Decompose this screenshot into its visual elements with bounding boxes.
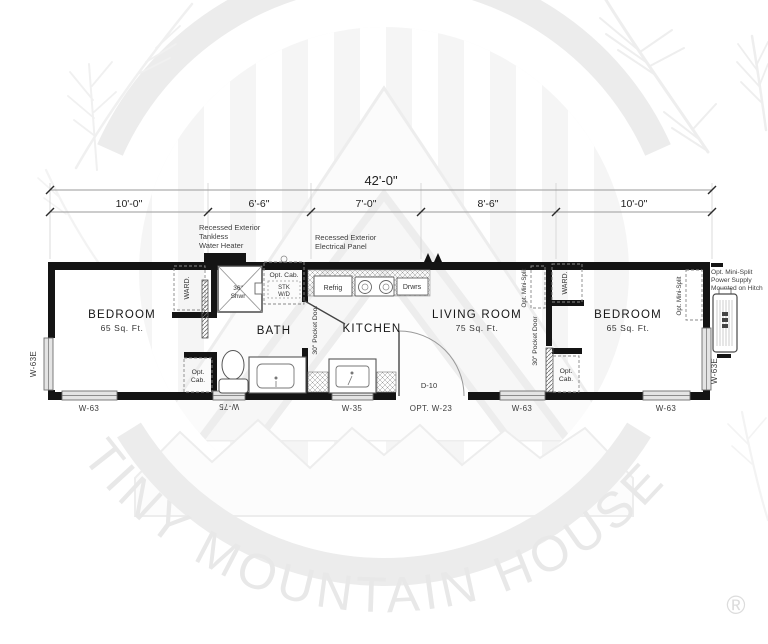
pocket-door-bedroom-label: 30" Pocket Door <box>532 316 539 366</box>
door-label: D-10 <box>421 381 437 390</box>
window-label-kitchen: W-35 <box>342 404 363 413</box>
toilet-tank <box>219 379 248 393</box>
pocket-door-leaf-left <box>202 280 208 338</box>
window-label-bedroom-left: W-63 <box>79 404 100 413</box>
kitchen-counter: Refrig Drwrs <box>308 270 430 296</box>
laundry-stk-label: STK <box>278 285 290 291</box>
opt-cab-bath-line2: Cab. <box>191 377 205 384</box>
hitch-line1: Opt. Mini-Split <box>711 269 753 276</box>
pocket-door-bath-label: 30" Pocket Door <box>312 305 319 355</box>
opt-cab-bedroom-line1: Opt. <box>560 368 573 375</box>
floor-plan-canvas: TINY MOUNTAIN HOUSES ® 42'-0" <box>0 0 768 644</box>
wall-optcab-right-stub <box>552 348 582 354</box>
water-heater-line1: Recessed Exterior <box>199 223 261 232</box>
shower-door-handle <box>255 283 262 294</box>
segment-dim-5: 10'-0" <box>621 198 648 210</box>
room-label-bath: BATH <box>257 325 292 337</box>
wall-left <box>48 262 55 338</box>
room-area-bedroom-left: 65 Sq. Ft. <box>101 323 144 333</box>
mini-split-bedroom-label: Opt. Mini-Split <box>676 276 683 315</box>
branch-decoration-top-left <box>68 4 192 170</box>
counter-hatch-left <box>308 372 328 392</box>
laundry-cab-label: Opt. Cab. <box>269 272 298 279</box>
wall-wardrobe-left-stub <box>172 312 217 318</box>
wall-right <box>703 262 710 328</box>
room-label-kitchen: KITCHEN <box>343 323 402 335</box>
drawers-label: Drwrs <box>403 284 422 291</box>
segment-dim-2: 6'-6" <box>249 198 270 210</box>
wardrobe-left-label: WARD. <box>184 276 191 299</box>
floor-plan-page: TINY MOUNTAIN HOUSES ® 42'-0" <box>0 0 768 644</box>
refrigerator-label: Refrig <box>324 285 343 292</box>
toilet-bowl <box>222 351 244 380</box>
electrical-panel-line1: Recessed Exterior <box>315 233 377 242</box>
recessed-heater-marker <box>204 253 246 262</box>
wall-wardrobe-right-stub <box>546 300 584 306</box>
wall-optcab-left-stub <box>184 352 217 358</box>
window-label-bath: W-75 <box>219 402 240 411</box>
opt-cab-bedroom-line2: Cab. <box>559 376 573 383</box>
mini-split-bedroom: Opt. Mini-Split <box>676 270 702 320</box>
registered-trademark-glyph: ® <box>726 590 745 620</box>
counter-hatch-right <box>377 372 396 392</box>
wall-bath-east <box>302 262 308 302</box>
shower-size-label: 36" <box>233 285 243 292</box>
window-label-left-side: W-63E <box>29 351 38 377</box>
hitch-tick-bottom <box>717 354 731 358</box>
window-label-right-side: W-63E <box>710 358 719 384</box>
opt-cab-bath-line1: Opt. <box>192 369 205 376</box>
door-option-label: OPT. W-23 <box>410 404 453 413</box>
branch-decoration-bottom-right <box>728 412 768 520</box>
hitch-line2: Power Supply <box>711 277 752 284</box>
room-label-bedroom-left: BEDROOM <box>88 309 156 321</box>
pocket-door-leaf-right <box>546 348 553 392</box>
room-label-living-room: LIVING ROOM <box>432 309 522 321</box>
segment-dim-3: 7'-0" <box>356 198 377 210</box>
room-area-living-room: 75 Sq. Ft. <box>456 323 499 333</box>
pocket-door-bath-west <box>202 280 208 338</box>
laundry-wd-label: W/D <box>278 292 290 298</box>
power-supply-unit <box>713 294 737 352</box>
window-label-bedroom-right: W-63 <box>656 404 677 413</box>
hitch-tick-top <box>711 263 723 267</box>
room-label-bedroom-right: BEDROOM <box>594 309 662 321</box>
electrical-panel-line2: Electrical Panel <box>315 242 367 251</box>
shower-label: Shwr <box>231 293 247 300</box>
overall-dimension-label: 42'-0" <box>364 173 398 188</box>
wardrobe-right-label: WARD. <box>562 271 569 294</box>
segment-dim-1: 10'-0" <box>116 198 143 210</box>
room-area-bedroom-right: 65 Sq. Ft. <box>607 323 650 333</box>
segment-dim-4: 8'-6" <box>478 198 499 210</box>
mini-split-living-label: Opt. Mini-Split <box>521 268 528 307</box>
water-heater-line3: Water Heater <box>199 241 244 250</box>
window-label-living-room: W-63 <box>512 404 533 413</box>
wall-top <box>48 262 710 270</box>
branch-decoration-left-edge <box>38 170 98 262</box>
bath-fixtures <box>219 351 306 394</box>
shower: 36" Shwr <box>218 266 262 312</box>
hitch-power-supply: Opt. Mini-Split Power Supply Mounted on … <box>711 263 763 358</box>
water-heater-line2: Tankless <box>199 232 228 241</box>
wall-bath-west <box>211 262 217 318</box>
